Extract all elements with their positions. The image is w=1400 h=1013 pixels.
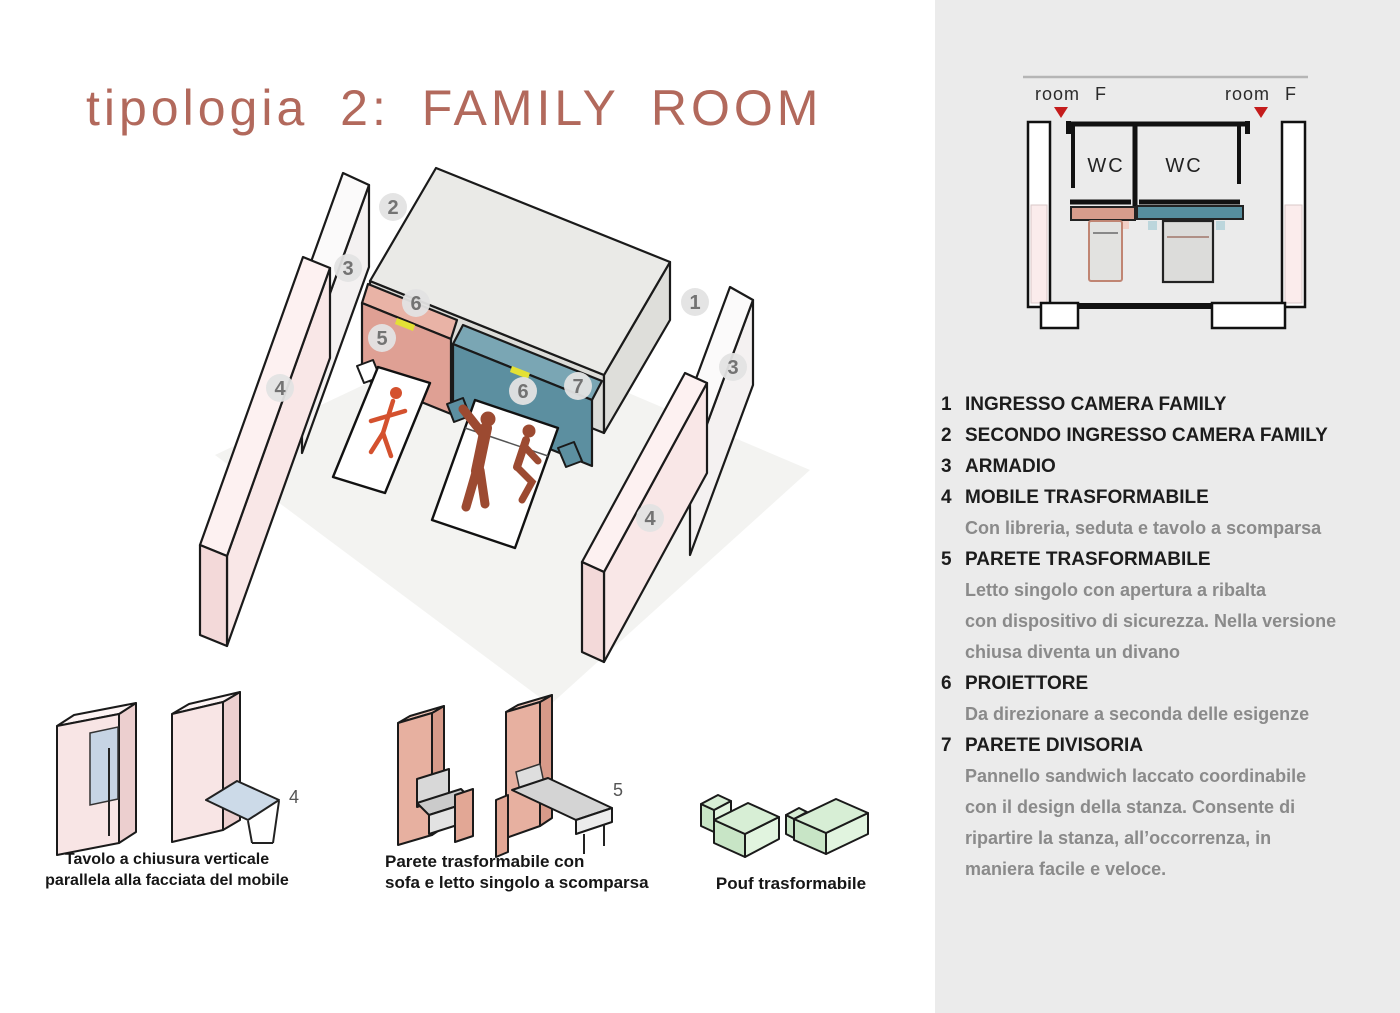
mobile-left-endcap bbox=[200, 545, 227, 646]
svg-text:3: 3 bbox=[342, 258, 353, 280]
wc-label-left: WC bbox=[1087, 155, 1124, 177]
svg-text:4: 4 bbox=[644, 508, 656, 530]
illustration-label-5: 5 bbox=[613, 780, 623, 800]
badge-3-left: 3 bbox=[334, 254, 362, 282]
svg-text:4: 4 bbox=[274, 378, 286, 400]
svg-text:5: 5 bbox=[376, 328, 387, 350]
legend-item-3-title: ARMADIO bbox=[965, 456, 1056, 478]
legend-item-7-desc-1: Pannello sandwich laccato coordinabile bbox=[965, 761, 1386, 792]
bed-side-wing bbox=[496, 795, 508, 857]
badge-4-left: 4 bbox=[266, 374, 294, 402]
plan-column-right-pink bbox=[1285, 205, 1302, 303]
badge-4-right: 4 bbox=[636, 504, 664, 532]
badge-5: 5 bbox=[368, 324, 396, 352]
legend-item-4-title: MOBILE TRASFORMABILE bbox=[965, 487, 1209, 509]
plan-door-jamb-left bbox=[1066, 121, 1071, 134]
legend-item-1: 1INGRESSO CAMERA FAMILY bbox=[941, 389, 1386, 420]
room-label-right: room F bbox=[1225, 84, 1297, 104]
legend-item-7-number: 7 bbox=[941, 735, 965, 757]
legend-item-7: 7PARETE DIVISORIA bbox=[941, 730, 1386, 761]
legend-item-7-desc-2: con il design della stanza. Consente di bbox=[965, 792, 1386, 823]
legend-item-6-number: 6 bbox=[941, 673, 965, 695]
badge-1: 1 bbox=[681, 288, 709, 316]
legend-item-1-title: INGRESSO CAMERA FAMILY bbox=[965, 394, 1226, 416]
room-label-left: room F bbox=[1035, 84, 1107, 104]
sofa-side-wing bbox=[455, 789, 473, 842]
badge-2: 2 bbox=[379, 193, 407, 221]
plan-teal-wall-bar bbox=[1137, 206, 1243, 219]
folded-table-panel bbox=[90, 727, 118, 805]
legend: 1INGRESSO CAMERA FAMILY 2SECONDO INGRESS… bbox=[941, 389, 1386, 885]
legend-item-2-title: SECONDO INGRESSO CAMERA FAMILY bbox=[965, 425, 1328, 447]
legend-item-2-number: 2 bbox=[941, 425, 965, 447]
legend-item-4-desc-1: Con libreria, seduta e tavolo a scompars… bbox=[965, 513, 1386, 544]
plan-bottom-tab-right bbox=[1212, 303, 1285, 328]
legend-item-5: 5PARETE TRASFORMABILE bbox=[941, 544, 1386, 575]
badge-7: 7 bbox=[564, 372, 592, 400]
caption-poufs-line-1: Pouf trasformabile bbox=[691, 873, 891, 894]
legend-item-6-desc-1: Da direzionare a seconda delle esigenze bbox=[965, 699, 1386, 730]
svg-text:6: 6 bbox=[517, 381, 528, 403]
svg-text:3: 3 bbox=[727, 357, 738, 379]
svg-text:7: 7 bbox=[572, 376, 583, 398]
illustration-wall-sofa-bed: 5 bbox=[398, 695, 623, 857]
brown-figure-child-head bbox=[523, 425, 536, 438]
badge-6-upper: 6 bbox=[402, 289, 430, 317]
plan-furniture bbox=[1071, 206, 1243, 282]
svg-text:2: 2 bbox=[387, 197, 398, 219]
legend-item-4-number: 4 bbox=[941, 487, 965, 509]
wc-label-right: WC bbox=[1165, 155, 1202, 177]
slide: tipologia 2: FAMILY ROOM bbox=[0, 0, 1400, 1013]
svg-text:1: 1 bbox=[689, 292, 700, 314]
legend-item-5-desc-2: con dispositivo di sicurezza. Nella vers… bbox=[965, 606, 1386, 637]
cabinet-open bbox=[172, 692, 279, 843]
orange-figure-head bbox=[390, 387, 402, 399]
legend-item-3-number: 3 bbox=[941, 456, 965, 478]
entrance-marker-right-icon bbox=[1254, 107, 1268, 118]
plan-teal-leg-right bbox=[1216, 221, 1225, 230]
plan-bottom-tab-left bbox=[1041, 303, 1078, 328]
badge-6-lower: 6 bbox=[509, 377, 537, 405]
legend-item-5-number: 5 bbox=[941, 549, 965, 571]
legend-item-3: 3ARMADIO bbox=[941, 451, 1386, 482]
caption-wall-sofa-bed: Parete trasformabile con sofa e letto si… bbox=[385, 851, 705, 893]
pouf-flat bbox=[786, 799, 868, 854]
badge-3-right: 3 bbox=[719, 353, 747, 381]
plan-double-bed bbox=[1163, 221, 1213, 282]
legend-item-1-number: 1 bbox=[941, 394, 965, 416]
caption-poufs: Pouf trasformabile bbox=[691, 873, 891, 894]
legend-item-7-desc-3: ripartire la stanza, all’occorrenza, in bbox=[965, 823, 1386, 854]
floor-plan: room F room F WC WC bbox=[1000, 55, 1330, 345]
plan-teal-leg-left bbox=[1148, 221, 1157, 230]
legend-item-7-desc-4: maniera facile e veloce. bbox=[965, 854, 1386, 885]
legend-item-5-desc-1: Letto singolo con apertura a ribalta bbox=[965, 575, 1386, 606]
wall-unit-bed bbox=[496, 695, 612, 857]
cabinet-closed bbox=[57, 703, 136, 855]
wall-unit-sofa bbox=[398, 706, 473, 845]
plan-door-jamb-right bbox=[1245, 121, 1250, 134]
mobile-right-endcap bbox=[582, 562, 604, 662]
caption-folding-table-line-1: Tavolo a chiusura verticale bbox=[16, 849, 318, 870]
legend-item-7-title: PARETE DIVISORIA bbox=[965, 735, 1143, 757]
illustration-label-4: 4 bbox=[289, 787, 299, 807]
plan-column-left-pink bbox=[1031, 205, 1047, 303]
svg-text:6: 6 bbox=[410, 293, 421, 315]
legend-item-5-desc-3: chiusa diventa un divano bbox=[965, 637, 1386, 668]
plan-single-bed bbox=[1089, 221, 1122, 281]
illustration-poufs bbox=[701, 795, 868, 857]
plan-salmon-wall-bar bbox=[1071, 207, 1135, 220]
caption-wall-sofa-bed-line-1: Parete trasformabile con bbox=[385, 851, 705, 872]
pouf-chaise bbox=[701, 795, 779, 857]
legend-item-5-title: PARETE TRASFORMABILE bbox=[965, 549, 1211, 571]
legend-item-6-title: PROIETTORE bbox=[965, 673, 1088, 695]
caption-folding-table-line-2: parallela alla facciata del mobile bbox=[16, 870, 318, 891]
entrance-marker-left-icon bbox=[1054, 107, 1068, 118]
legend-item-6: 6PROIETTORE bbox=[941, 668, 1386, 699]
caption-folding-table: Tavolo a chiusura verticale parallela al… bbox=[16, 849, 318, 891]
illustration-folding-table: 4 bbox=[57, 692, 299, 855]
legend-item-2: 2SECONDO INGRESSO CAMERA FAMILY bbox=[941, 420, 1386, 451]
legend-item-4: 4MOBILE TRASFORMABILE bbox=[941, 482, 1386, 513]
caption-wall-sofa-bed-line-2: sofa e letto singolo a scomparsa bbox=[385, 872, 705, 893]
